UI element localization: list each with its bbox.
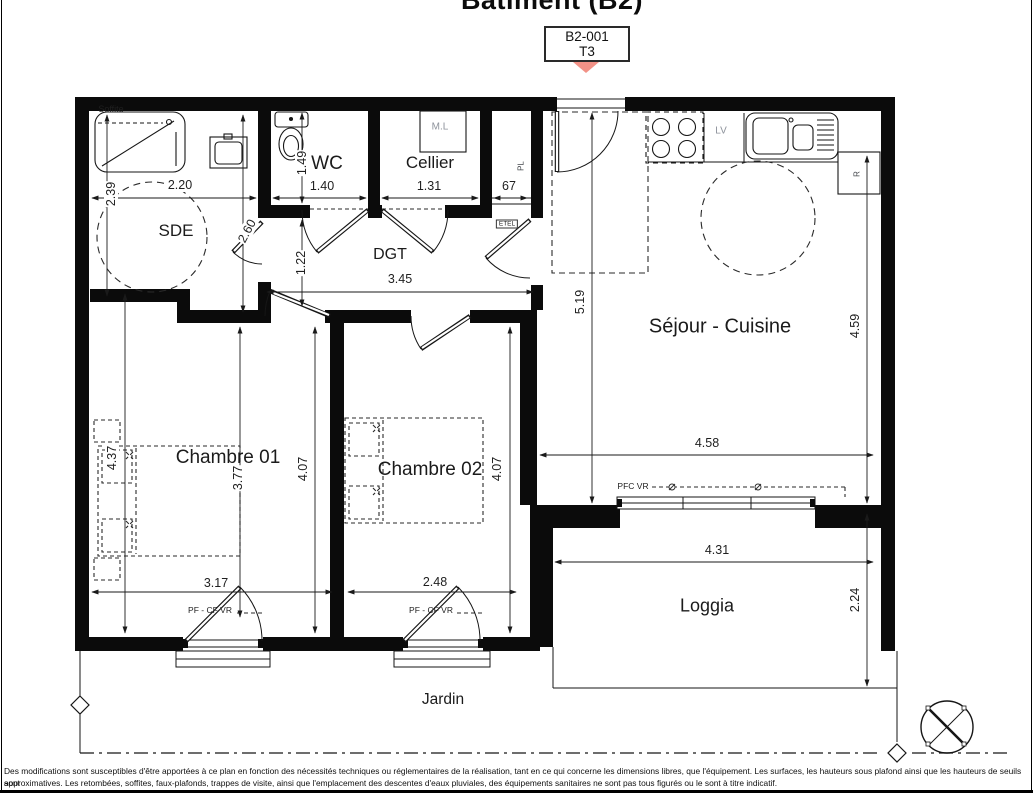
fixture-tag: PFC VR	[617, 481, 648, 491]
dimension-label: 3.77	[231, 465, 245, 491]
dimension-label: 1.49	[295, 150, 309, 176]
turning-circle-sejour	[701, 161, 815, 275]
fixture-tag: PL	[517, 161, 526, 171]
dimension-label: 2.20	[167, 178, 193, 192]
fixture-tag: ETEL	[496, 220, 518, 229]
dimension-label: 4.59	[848, 313, 862, 339]
room-label: Chambre 01	[176, 447, 281, 469]
unit-type: T3	[546, 44, 628, 59]
survey-diamond-right	[888, 744, 906, 762]
room-label: SDE	[159, 221, 194, 241]
site-symbols	[71, 696, 973, 762]
room-label: DGT	[373, 246, 407, 264]
disclaimer-line-2: approximatives. Les retombées, soffites,…	[4, 778, 1028, 790]
dimension-label: 1.40	[309, 179, 335, 193]
dimension-label: 4.37	[105, 445, 119, 471]
room-label: WC	[311, 153, 343, 175]
unit-tag: B2-001 T3	[544, 26, 630, 62]
dimension-label: 2.24	[848, 587, 862, 613]
dimension-label: 4.07	[296, 456, 310, 482]
survey-diamond-left	[71, 696, 89, 714]
dashed-elements	[97, 112, 845, 613]
dimension-label: 2.48	[422, 575, 448, 589]
fixture-tag: PF - CF VR	[409, 605, 453, 615]
room-label: Jardin	[422, 691, 464, 709]
kitchen-sink	[746, 113, 838, 159]
footer-rule	[0, 790, 1033, 793]
window-chambre-01	[176, 637, 270, 667]
floorplan-sheet: { "header": { "title": "Bâtiment (B2)", …	[0, 0, 1033, 800]
dimension-label: 4.31	[704, 543, 730, 557]
walls	[75, 97, 895, 651]
fixture-tag: LV	[715, 126, 727, 137]
hob	[646, 112, 703, 163]
dimension-label: 4.58	[694, 436, 720, 450]
doors	[186, 111, 618, 641]
fixture-tag: R	[853, 171, 862, 177]
floorplan-drawing	[0, 0, 1033, 800]
dimension-label: 1.31	[416, 179, 442, 193]
dimension-label: 2.39	[104, 181, 118, 207]
fixture-tag: M.L	[432, 122, 449, 133]
fixture-tag: PF - CF VR	[188, 605, 232, 615]
dimension-label: 4.07	[490, 456, 504, 482]
window-chambre-02	[394, 637, 490, 667]
dimension-label: 1.22	[294, 250, 308, 276]
dimension-label: 5.19	[573, 289, 587, 315]
entry-soffit	[552, 112, 648, 273]
dimension-label: 67	[501, 179, 517, 193]
fixture-tag: Soffite	[98, 104, 123, 114]
unit-marker-triangle	[573, 62, 599, 73]
dimension-label: 3.45	[387, 272, 413, 286]
dimension-label: 3.17	[203, 576, 229, 590]
unit-code: B2-001	[546, 29, 628, 44]
room-label: Loggia	[680, 596, 734, 617]
room-label: Cellier	[406, 153, 454, 173]
room-label: Séjour - Cuisine	[649, 316, 791, 339]
compass-icon	[921, 701, 973, 753]
room-label: Chambre 02	[378, 459, 483, 481]
